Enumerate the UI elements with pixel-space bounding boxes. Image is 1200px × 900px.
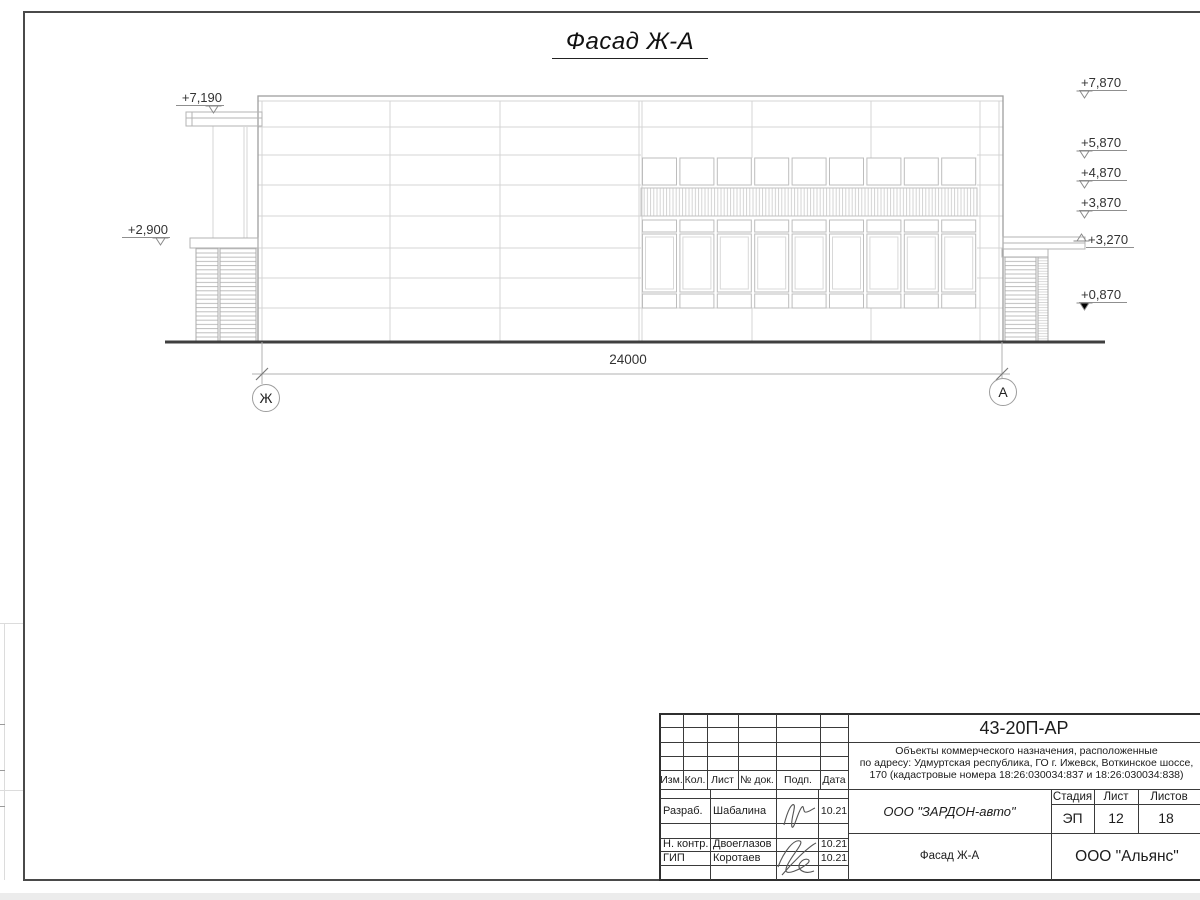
- elevation-mark: +4,870: [1079, 165, 1127, 181]
- axis-label: Ж: [260, 390, 273, 406]
- drawing-sheet: Фасад Ж-А: [0, 0, 1200, 900]
- sheet-label: Лист: [1094, 791, 1138, 803]
- signature: [774, 833, 820, 879]
- margin-tick: [0, 806, 5, 807]
- signer-name: Коротаев: [713, 852, 761, 864]
- rev-header: Подп.: [776, 774, 820, 786]
- drawing-name: Фасад Ж-А: [848, 850, 1051, 862]
- rev-header: Изм.: [660, 774, 683, 786]
- document-code: 43-20П-АР: [848, 718, 1200, 739]
- elevation-arrow-icon: [1076, 210, 1093, 219]
- elevation-mark: +7,870: [1079, 75, 1127, 91]
- rev-header: Лист: [707, 774, 738, 786]
- elevation-arrow-icon: [1076, 90, 1093, 99]
- elevation-value: +3,870: [1081, 195, 1121, 210]
- axis-bubble: Ж: [252, 384, 280, 412]
- rev-header: Кол.: [683, 774, 707, 786]
- building-outline: [258, 96, 1003, 342]
- sheet-edge-shadow: [0, 893, 1200, 900]
- elevation-mark: +2,900: [122, 222, 170, 238]
- signer-name: Двоеглазов: [713, 838, 771, 850]
- project-description-line: по адресу: Удмуртская республика, ГО г. …: [848, 757, 1200, 769]
- signer-date: 10.21: [820, 838, 848, 850]
- dimension-value: 24000: [595, 352, 661, 367]
- signer-role: ГИП: [663, 852, 685, 864]
- stage-label: Стадия: [1051, 791, 1094, 803]
- margin-line: [4, 623, 5, 880]
- elevation-arrow-icon: [1076, 180, 1093, 189]
- elevation-mark: +5,870: [1079, 135, 1127, 151]
- elevation-mark: +3,270: [1086, 232, 1134, 248]
- elevation-value: +4,870: [1081, 165, 1121, 180]
- axis-label: А: [998, 384, 1007, 400]
- margin-tick: [0, 724, 5, 725]
- project-description-line: Объекты коммерческого назначения, распол…: [848, 745, 1200, 757]
- signer-role: Разраб.: [663, 805, 703, 817]
- stage-value: ЭП: [1051, 810, 1094, 826]
- elevation-mark: +7,190: [176, 90, 224, 106]
- sheet-number: 12: [1094, 810, 1138, 826]
- elevation-value: +2,900: [128, 222, 168, 237]
- signature: [778, 799, 818, 832]
- axis-bubble: А: [989, 378, 1017, 406]
- elevation-arrow-icon: [205, 105, 222, 114]
- signer-date: 10.21: [820, 805, 848, 817]
- project-description-line: 170 (кадастровые номера 18:26:030034:837…: [848, 769, 1200, 781]
- elevation-arrow-up-icon: [1073, 233, 1090, 242]
- hatched-band: [641, 188, 977, 216]
- elevation-arrow-icon: [1076, 302, 1093, 311]
- signer-role: Н. контр.: [663, 838, 708, 850]
- contractor-name: ООО "ЗАРДОН-авто": [848, 804, 1051, 819]
- wall-joints: [213, 101, 1003, 342]
- elevation-arrow-icon: [1076, 150, 1093, 159]
- rev-header: Дата: [820, 774, 848, 786]
- signer-name: Шабалина: [713, 805, 766, 817]
- elevation-mark: +3,870: [1079, 195, 1127, 211]
- elevation-value: +0,870: [1081, 287, 1121, 302]
- signer-date: 10.21: [820, 852, 848, 864]
- organization-name: ООО "Альянс": [1051, 848, 1200, 866]
- louver-screens: [196, 248, 1048, 342]
- margin-tick: [0, 770, 5, 771]
- elevation-mark: +0,870: [1079, 287, 1127, 303]
- sheets-total: 18: [1138, 810, 1194, 826]
- elevation-value: +7,190: [182, 90, 222, 105]
- elevation-value: +5,870: [1081, 135, 1121, 150]
- rev-header: № док.: [738, 774, 776, 786]
- elevation-arrow-icon: [152, 237, 169, 246]
- margin-line: [0, 790, 23, 791]
- window-bays: [643, 158, 976, 308]
- sheets-label: Листов: [1138, 791, 1200, 803]
- elevation-value: +3,270: [1088, 232, 1128, 247]
- elevation-value: +7,870: [1081, 75, 1121, 90]
